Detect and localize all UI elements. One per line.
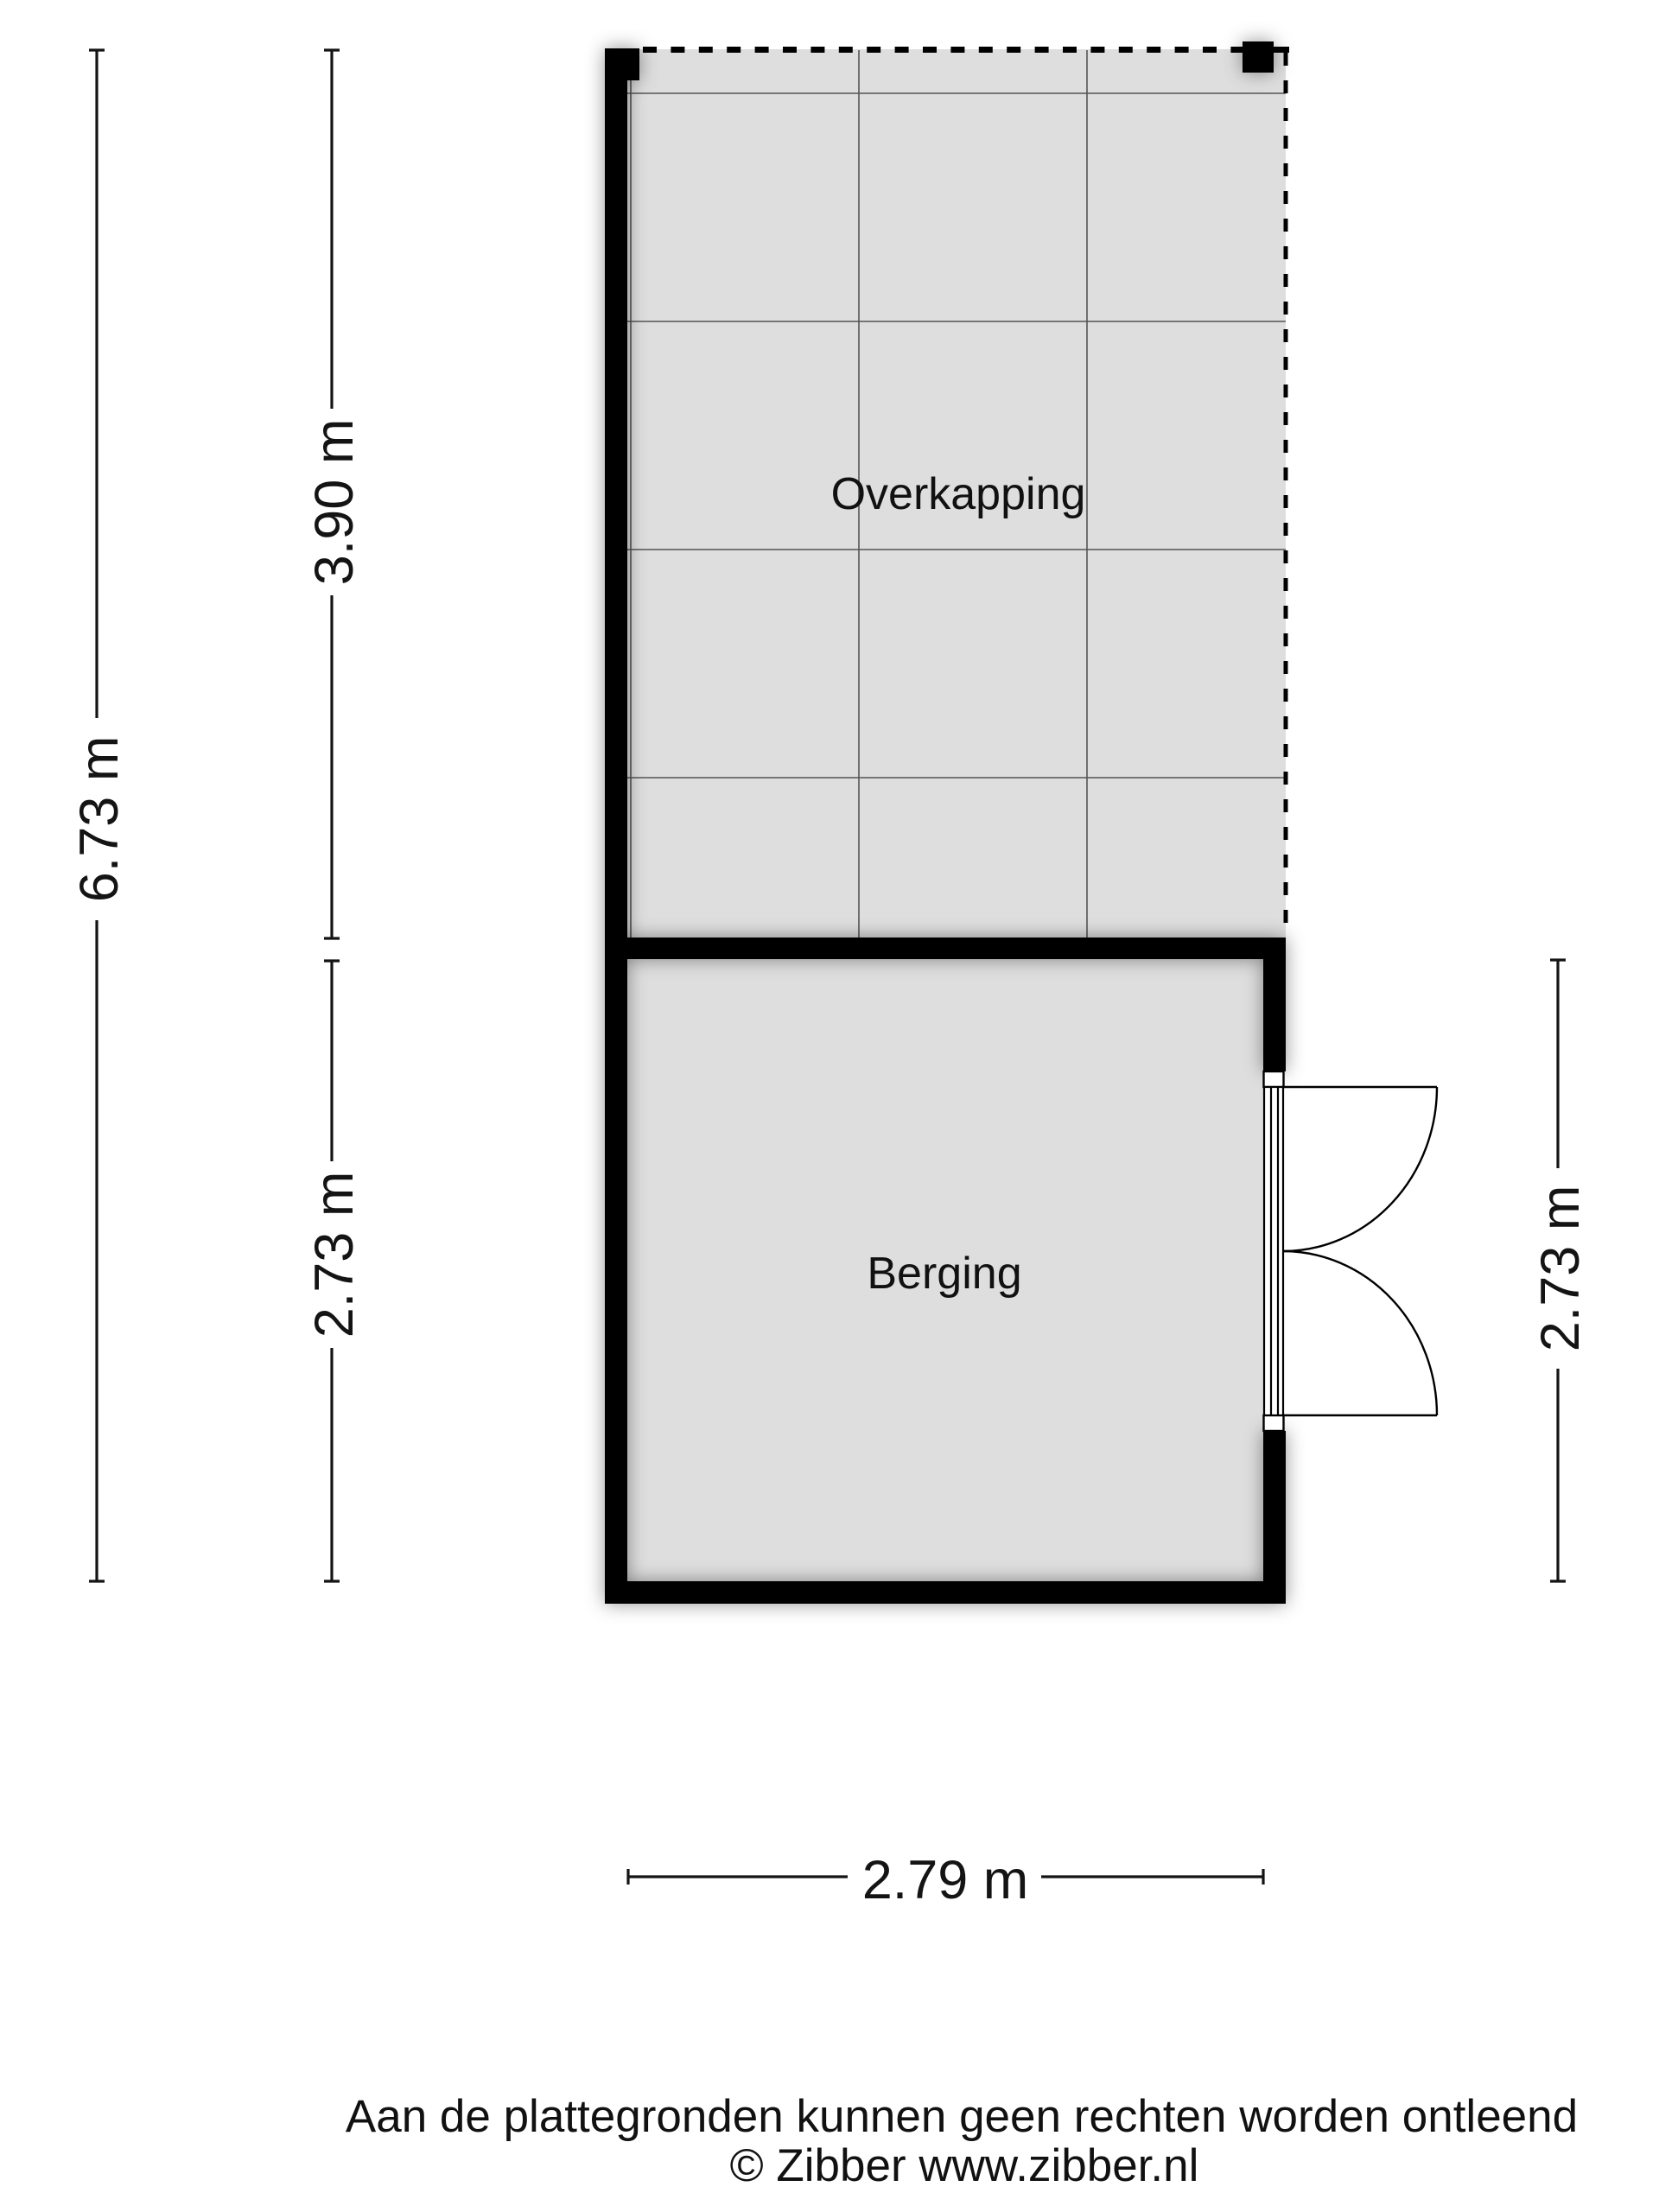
svg-text:6.73 m: 6.73 m <box>69 736 130 903</box>
svg-text:© Zibber www.zibber.nl: © Zibber www.zibber.nl <box>730 2140 1199 2191</box>
svg-text:Aan de plattegronden kunnen ge: Aan de plattegronden kunnen geen rechten… <box>346 2091 1578 2142</box>
svg-text:Berging: Berging <box>867 1249 1021 1299</box>
svg-text:3.90 m: 3.90 m <box>304 419 365 586</box>
svg-text:2.73 m: 2.73 m <box>1530 1185 1591 1352</box>
svg-text:2.79 m: 2.79 m <box>862 1850 1029 1910</box>
svg-text:Overkapping: Overkapping <box>831 469 1086 519</box>
svg-text:2.73 m: 2.73 m <box>304 1172 365 1338</box>
